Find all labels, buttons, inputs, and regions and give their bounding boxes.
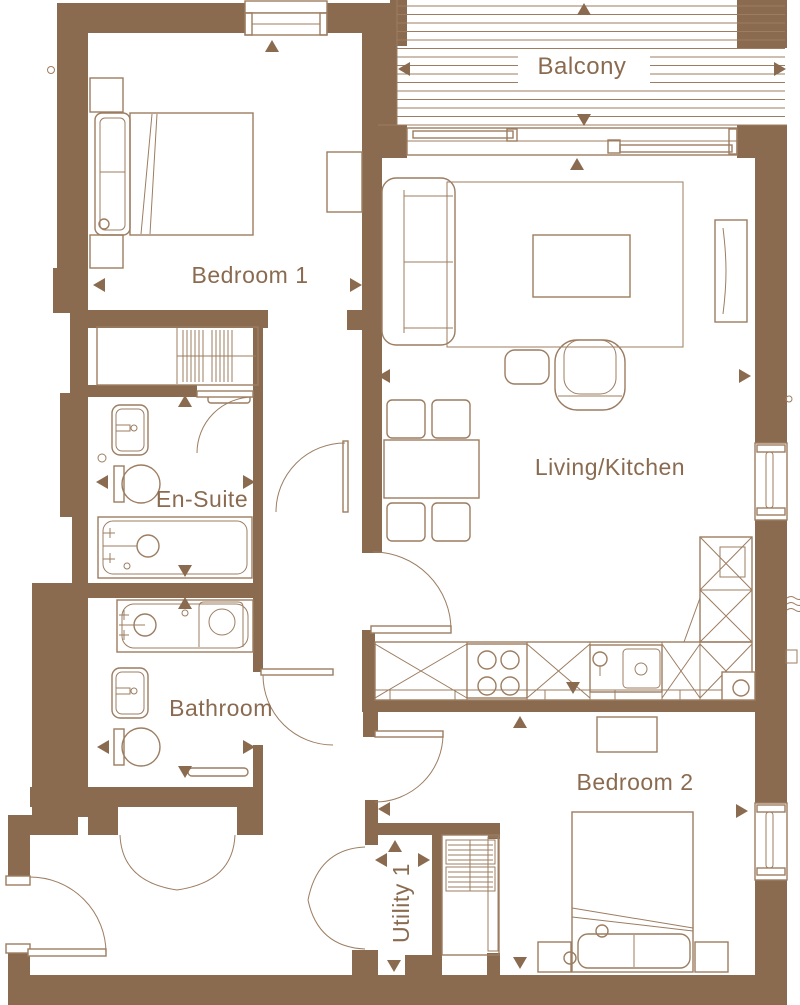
basin-tap-head <box>131 425 137 431</box>
toilet-bowl <box>122 465 160 503</box>
tv-unit <box>715 220 747 322</box>
dining-chair <box>432 400 470 438</box>
wall-utility-top <box>378 823 500 835</box>
bed-cushion <box>596 925 608 937</box>
dim-arrow-balcony-down-icon <box>577 114 591 126</box>
tv-cabinet <box>715 220 747 322</box>
room-label-bedroom1: Bedroom 1 <box>191 262 308 288</box>
bathroom-fixtures <box>112 600 333 776</box>
dim-arrow-utility-up-icon <box>388 840 402 852</box>
armchair-inner <box>564 340 616 394</box>
wall-utility-bottom <box>405 955 442 977</box>
wall-utility-bottom-left <box>352 950 378 977</box>
wall-kitchen-bedroom2 <box>362 700 755 712</box>
dim-arrow-bedroom1-left-icon <box>93 278 105 292</box>
wall-balcony-stub-right <box>737 125 787 158</box>
basin-tap <box>116 688 130 694</box>
dresser <box>327 152 362 212</box>
wall-left-closet <box>70 283 88 395</box>
dining-set <box>384 400 479 541</box>
oven <box>720 547 745 577</box>
bath-drain <box>182 610 188 616</box>
utility-door-arcs <box>308 847 365 949</box>
bathroom-toilet <box>114 728 160 766</box>
door-swing-arc <box>373 552 451 630</box>
ensuite-basin <box>112 405 148 455</box>
sofa <box>382 178 455 345</box>
bed-outline <box>572 812 693 972</box>
dresser <box>597 717 657 752</box>
wall-cupboard-left <box>88 807 118 835</box>
door-swing-arc <box>276 443 345 512</box>
wall-utility-right <box>432 835 442 955</box>
door-leaf <box>261 669 333 675</box>
tap <box>593 652 607 666</box>
bed-cushion <box>564 952 576 964</box>
bed-mattress <box>130 113 253 235</box>
living-window <box>755 443 787 520</box>
toilet-bowl <box>122 728 160 766</box>
room-label-ensuite: En-Suite <box>156 486 248 512</box>
wall-bathroom-bottom <box>30 787 263 807</box>
kitchen-sink <box>590 645 662 692</box>
door-swing-arc <box>197 397 253 453</box>
kitchen <box>375 537 755 700</box>
closet <box>97 327 258 385</box>
dim-arrow-bedroom2-up-icon <box>513 716 527 728</box>
room-label-bathroom: Bathroom <box>169 695 273 721</box>
towel-rail <box>188 768 248 776</box>
wall-bedroom2-jamb-bottom <box>365 800 378 845</box>
living-room-door <box>371 552 451 633</box>
ensuite-fixtures <box>98 391 253 578</box>
ensuite-toilet <box>114 465 160 503</box>
burner <box>478 651 496 669</box>
duvet-fold-lines <box>572 908 693 931</box>
dim-arrow-bathroom-up-icon <box>178 597 192 609</box>
dining-chair <box>432 503 470 541</box>
dim-arrow-living-right-icon <box>739 369 751 383</box>
dim-arrow-balcony-up-icon <box>577 3 591 15</box>
dining-table <box>384 440 479 498</box>
door-leaf <box>197 391 253 397</box>
tall-units <box>700 537 752 642</box>
shower-drain <box>124 563 130 569</box>
bedroom1-window <box>245 1 327 35</box>
room-label-balcony: Balcony <box>538 53 627 80</box>
bedroom2-door <box>375 731 443 802</box>
sink-drain <box>635 663 647 675</box>
hall-cupboard-doors <box>120 835 235 890</box>
bathroom-basin <box>112 668 148 718</box>
kitchen-cabinet-hatch <box>375 598 752 700</box>
wall-bedroom1-living <box>362 3 397 143</box>
vent-squiggle <box>787 597 800 612</box>
bedroom2-furniture <box>442 717 728 972</box>
basin-tap-head <box>131 688 137 694</box>
window-outer <box>245 1 327 13</box>
room-label-utility: Utility 1 <box>388 863 414 943</box>
cupboard-door-strip <box>488 837 498 951</box>
wall-hall-living <box>362 143 382 553</box>
burner <box>478 677 496 695</box>
room-label-living-kitchen: Living/Kitchen <box>535 454 685 480</box>
dim-arrow-living-up-icon <box>570 158 584 170</box>
rug <box>447 182 683 347</box>
wall-bedroom1-bottom-jamb <box>347 310 362 330</box>
pouf <box>505 350 549 384</box>
door-leaf <box>375 731 443 737</box>
sofa-back-and-arms <box>404 190 453 333</box>
cupboard-door-arcs <box>120 835 235 890</box>
wall-ensuite-bathroom <box>88 583 263 598</box>
wall-balcony-right-block <box>737 0 787 48</box>
door-swing-arc <box>263 675 333 745</box>
door-leaf <box>371 626 451 633</box>
door-swing-arc <box>375 734 443 802</box>
basin-tap <box>116 425 130 431</box>
nightstand <box>90 78 123 112</box>
wall-step-hall <box>8 815 78 835</box>
bed-headboard-inner <box>100 118 125 230</box>
appliance-cupboard <box>442 835 499 955</box>
utility-double-doors <box>308 847 365 949</box>
door-jamb-cap <box>6 876 30 885</box>
louver-slats <box>448 840 493 891</box>
corridor-door <box>276 441 348 512</box>
dim-arrow-ensuite-left-icon <box>96 475 108 489</box>
ensuite-door <box>197 391 253 453</box>
wall-left-ensuite <box>60 393 88 517</box>
floor-plan-canvas: Balcony Bedroom 1 Living/Kitchen En-Suit… <box>0 0 800 1005</box>
wall-bathroom-right-lower <box>253 745 263 787</box>
nightstand <box>538 942 571 972</box>
wall-left-bathroom <box>32 583 88 817</box>
bedroom1-furniture <box>90 78 362 268</box>
dim-arrow-bedroom2-left-icon <box>378 802 390 816</box>
nightstand <box>90 235 123 268</box>
sliding-door <box>407 128 737 155</box>
ensuite-shower <box>98 517 252 578</box>
floor-plan-svg: Balcony Bedroom 1 Living/Kitchen En-Suit… <box>0 0 800 1005</box>
room-label-bedroom2: Bedroom 2 <box>576 769 693 795</box>
nightstand <box>695 942 728 972</box>
shower-tray-inner <box>103 521 247 574</box>
dim-arrow-utility-left-icon <box>375 853 387 867</box>
wall-bathroom-right-upper <box>253 598 263 672</box>
shower-tray <box>98 517 252 578</box>
door-leaf <box>28 949 106 956</box>
dim-arrow-bedroom1-right-icon <box>350 278 362 292</box>
bedroom2-window <box>755 803 787 880</box>
shower-taps <box>103 528 137 563</box>
dim-arrow-ensuite-down-icon <box>178 565 192 577</box>
wall-closet-bottom <box>88 385 197 397</box>
dim-arrow-bedroom1-up-icon <box>265 40 279 52</box>
wall-cupboard-right <box>237 807 263 835</box>
dining-chair <box>387 503 425 541</box>
dim-arrow-utility-down-icon <box>387 960 401 972</box>
meter-box <box>786 650 797 663</box>
coffee-table <box>533 235 630 297</box>
wall-hall-kitchen <box>362 630 375 712</box>
door-jamb-cap <box>6 944 30 953</box>
dim-arrow-bathroom-left-icon <box>97 740 109 754</box>
tall-cabinet-hatch <box>700 537 752 642</box>
wall-ensuite-right <box>253 397 263 583</box>
door-leaf <box>343 441 348 512</box>
exterior-marker <box>48 67 55 74</box>
wall-balcony-stub-left <box>378 125 407 158</box>
dining-chair <box>387 400 425 438</box>
living-furniture <box>382 178 747 541</box>
duvet-fold-lines <box>141 114 157 234</box>
wall-left-bedroom1 <box>57 3 88 283</box>
dim-arrow-bedroom2-right-icon <box>736 804 748 818</box>
entrance-door <box>6 876 106 956</box>
dim-arrow-bedroom2-down-icon <box>513 957 527 969</box>
screen-circle <box>209 609 235 635</box>
wall-bedroom1-bottom <box>88 310 268 328</box>
armchair <box>555 340 625 410</box>
shower-head <box>137 535 159 557</box>
dim-arrow-utility-right-icon <box>418 853 430 867</box>
armchair-outline <box>555 340 625 410</box>
wall-nook-bottom <box>487 953 500 977</box>
door-swing-arc <box>30 877 106 953</box>
wall-left-shower <box>72 515 88 585</box>
burner <box>501 677 519 695</box>
tv-screen <box>723 228 726 314</box>
burner <box>501 651 519 669</box>
sink-basin <box>623 649 660 688</box>
wall-bottom <box>8 975 787 1005</box>
corner-unit <box>722 672 755 700</box>
door-stop <box>98 454 106 462</box>
